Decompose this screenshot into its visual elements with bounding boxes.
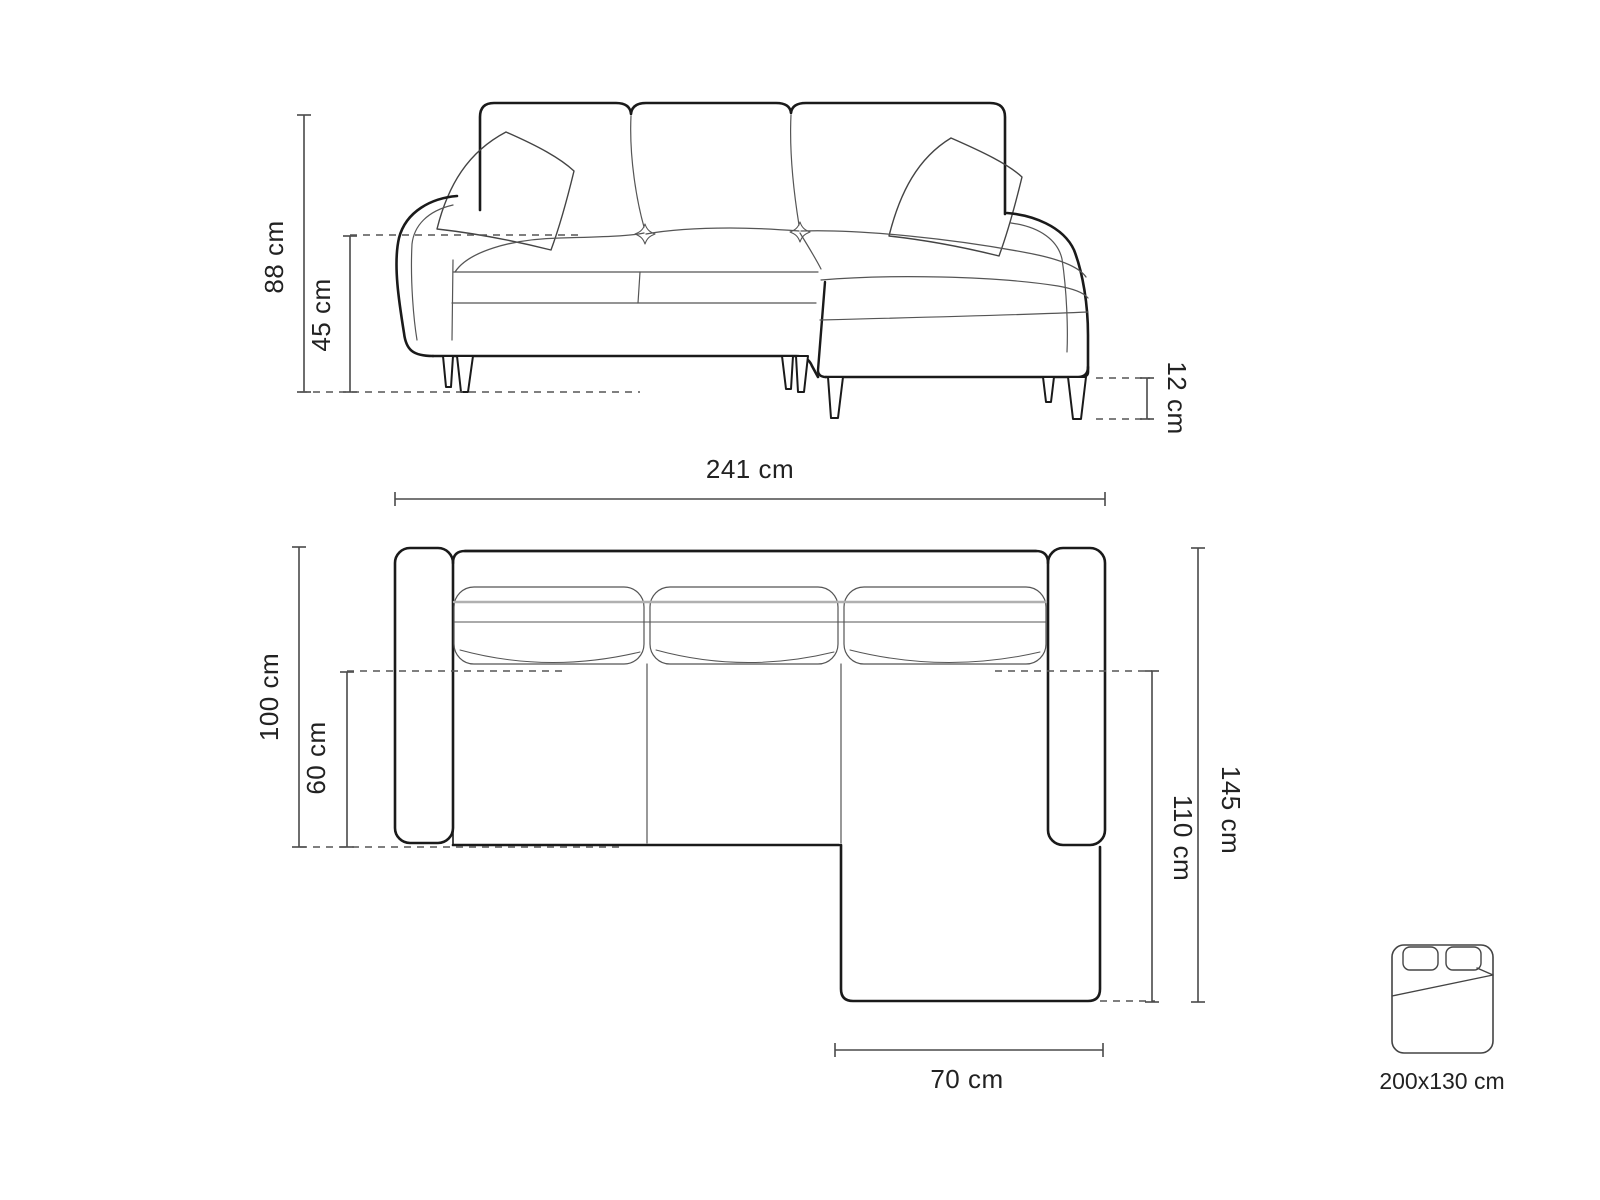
plan-cushion-bulge bbox=[656, 650, 834, 663]
front-seat-surface bbox=[646, 228, 799, 234]
plan-back-cushion bbox=[650, 587, 838, 664]
front-chaise-left-edge bbox=[818, 282, 826, 377]
plan-cushion-bulge bbox=[850, 650, 1040, 663]
plan-chaise-extension-label: 110 cm bbox=[1168, 795, 1198, 881]
front-seat-surface bbox=[455, 233, 644, 272]
front-chaise-seat-surface bbox=[801, 231, 1086, 277]
diagram-canvas: 88 cm 45 cm 12 cm bbox=[0, 0, 1600, 1200]
front-base-bottom bbox=[433, 356, 818, 377]
front-left-armrest-inner bbox=[411, 205, 453, 340]
sofa-leg bbox=[782, 356, 793, 389]
plan-seat-depth-label: 60 cm bbox=[301, 721, 331, 794]
plan-right-armrest bbox=[1048, 548, 1105, 845]
plan-chaise-total-depth-label: 145 cm bbox=[1216, 766, 1246, 854]
bed-pillow-icon bbox=[1446, 947, 1481, 970]
front-left-body-edge bbox=[452, 260, 453, 340]
plan-main-body bbox=[453, 551, 1048, 845]
front-seat-height-label: 45 cm bbox=[306, 278, 336, 351]
front-total-height-label: 88 cm bbox=[259, 220, 289, 293]
chaise-leg bbox=[828, 377, 843, 418]
plan-chaise-width-label: 70 cm bbox=[930, 1064, 1003, 1094]
chaise-leg bbox=[1068, 377, 1086, 419]
bed-pillow-icon bbox=[1403, 947, 1438, 970]
front-backrest-divider bbox=[631, 116, 644, 227]
front-chaise-seam bbox=[820, 312, 1088, 320]
right-throw-pillow bbox=[889, 138, 1022, 256]
sleeping-area-size-label: 200x130 cm bbox=[1379, 1068, 1504, 1094]
sofa-leg bbox=[796, 356, 808, 392]
front-right-armrest bbox=[1007, 213, 1088, 377]
sofa-leg bbox=[457, 356, 473, 392]
left-throw-pillow bbox=[437, 132, 574, 250]
top-view-dimensions bbox=[292, 492, 1205, 1057]
front-backrest-divider bbox=[791, 115, 799, 225]
front-chaise-seat-edge bbox=[800, 233, 821, 269]
plan-chaise-outline bbox=[841, 845, 1100, 1001]
plan-cushion-bulge bbox=[460, 650, 640, 663]
front-leg-height-label: 12 cm bbox=[1162, 361, 1192, 434]
sofa-dimension-diagram: 88 cm 45 cm 12 cm bbox=[0, 0, 1600, 1200]
plan-back-cushion bbox=[844, 587, 1046, 664]
sofa-leg bbox=[443, 356, 453, 387]
tuft-diamond bbox=[790, 222, 810, 242]
chaise-leg bbox=[1043, 377, 1054, 402]
sofa-front-view bbox=[396, 103, 1088, 419]
plan-total-width-label: 241 cm bbox=[706, 454, 794, 484]
sofa-top-view bbox=[395, 548, 1105, 1001]
front-seat-divider bbox=[638, 272, 640, 303]
plan-left-armrest bbox=[395, 548, 453, 843]
front-chaise-bottom bbox=[826, 367, 1088, 377]
sleeping-area-icon bbox=[1392, 945, 1493, 1053]
front-chaise-seat-front bbox=[821, 277, 1088, 298]
bed-blanket-fold bbox=[1392, 968, 1493, 996]
front-right-armrest-inner bbox=[1011, 223, 1067, 352]
plan-back-cushion bbox=[454, 587, 644, 664]
plan-total-depth-label: 100 cm bbox=[254, 653, 284, 741]
front-view-dimensions bbox=[297, 115, 1154, 419]
front-left-armrest bbox=[396, 196, 457, 356]
